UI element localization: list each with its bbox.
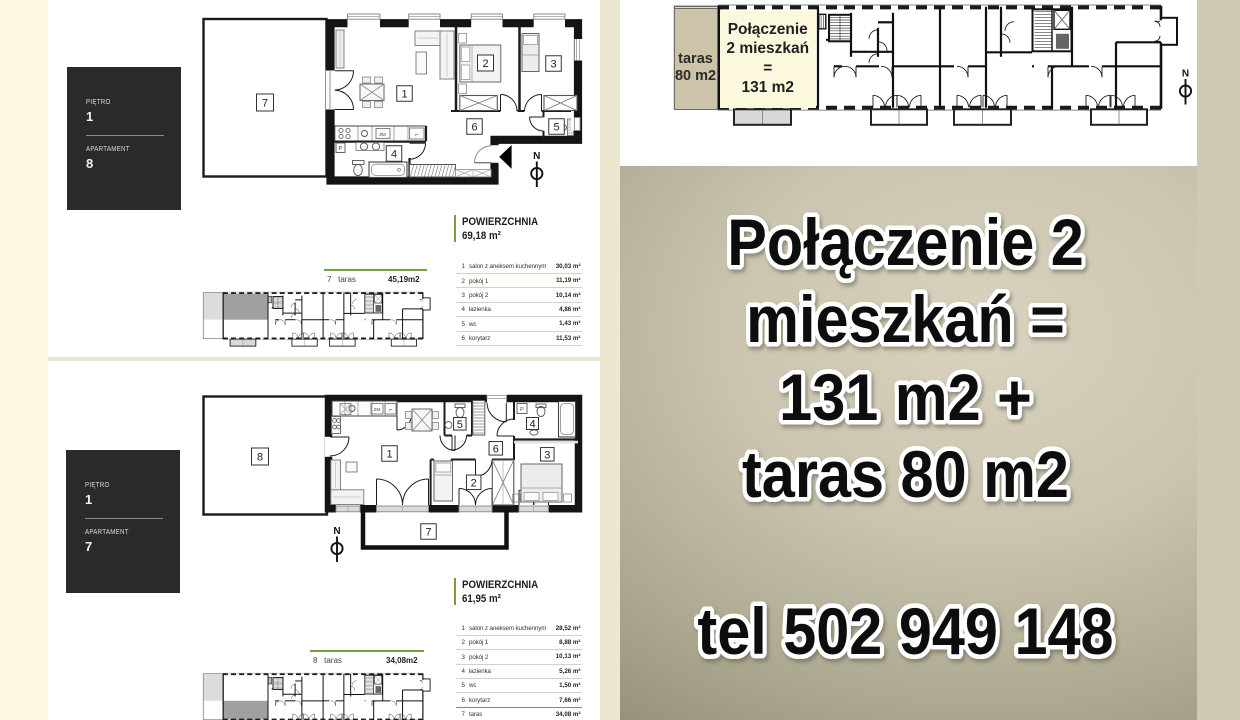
svg-text:1: 1 <box>386 448 392 460</box>
svg-text:N: N <box>533 151 540 162</box>
svg-text:6: 6 <box>493 443 499 455</box>
svg-text:P: P <box>520 407 524 413</box>
svg-text:7: 7 <box>262 97 268 109</box>
svg-text:3: 3 <box>544 449 550 461</box>
svg-text:4: 4 <box>391 148 397 160</box>
svg-text:1: 1 <box>401 88 407 100</box>
svg-text:ZM: ZM <box>374 407 381 412</box>
svg-text:5: 5 <box>457 419 463 431</box>
svg-text:ZM: ZM <box>379 132 386 137</box>
svg-text:2: 2 <box>471 477 477 489</box>
svg-text:N: N <box>1182 69 1189 80</box>
svg-text:7: 7 <box>425 526 431 538</box>
svg-text:⌐: ⌐ <box>415 133 419 139</box>
svg-text:P: P <box>339 146 343 152</box>
svg-text:⌐: ⌐ <box>389 408 393 414</box>
svg-text:8: 8 <box>257 451 263 463</box>
svg-text:6: 6 <box>471 121 477 133</box>
svg-text:5: 5 <box>553 121 559 133</box>
svg-text:N: N <box>333 526 340 537</box>
svg-text:4: 4 <box>529 418 535 430</box>
svg-text:3: 3 <box>550 58 556 70</box>
svg-text:2: 2 <box>482 58 488 70</box>
